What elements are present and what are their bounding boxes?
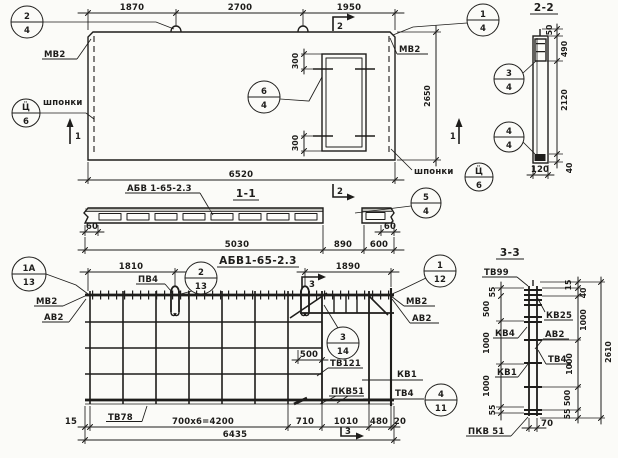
dim-1810: 1810	[119, 262, 143, 272]
slab-section-main-stroke	[239, 214, 261, 221]
section-1-1-dimensions-stroke	[83, 230, 397, 235]
callout-den: 6	[23, 117, 29, 127]
dim-300-bot: 300	[291, 134, 300, 151]
callout-1-12: 1 12	[392, 255, 456, 294]
dim-5030: 5030	[225, 240, 249, 250]
callout-num: 1А	[23, 264, 36, 274]
mesh-view: АБВ1-65-2.3	[12, 255, 457, 444]
section-mark-2-top-stroke	[347, 14, 355, 21]
dim-2120: 2120	[560, 89, 569, 111]
label-mv2-mesh-right-stroke	[391, 296, 404, 306]
callout-1-12-stroke	[392, 278, 426, 294]
section-2-2-body-stroke	[535, 154, 546, 161]
label-mv2-mesh-left: МВ2	[34, 296, 85, 307]
dim-500-left: 500	[482, 300, 491, 317]
callout-den: 4	[506, 83, 512, 93]
dim-4200: 700x6=4200	[172, 417, 234, 427]
dim-1000-a-left: 1000	[482, 332, 491, 354]
callout-num: 3	[506, 69, 512, 79]
label-pv4-stroke	[165, 284, 171, 291]
callout-3-4: 3 4	[494, 61, 536, 94]
section-mark-1-right-stroke	[456, 118, 463, 127]
mesh-bars-stroke	[85, 322, 322, 374]
section-1-1-view: 1-1 5 4	[78, 188, 441, 254]
dim-6435: 6435	[223, 430, 247, 440]
callout-6-4-stroke	[280, 77, 322, 101]
opening-dimensions: 300 300	[291, 49, 322, 156]
section-3-3-view: 3-3 ТВ99 КВ4 КВ1 ПКВ 51 КВ25 АВ	[466, 247, 613, 437]
panel-outline	[88, 32, 395, 160]
label-mv2-right-stroke	[390, 38, 397, 54]
section-mark-2-top: 2	[333, 14, 355, 33]
dim-60-left: 60	[86, 222, 98, 232]
title-text: 3-3	[500, 247, 520, 259]
plan-view: 1870 2700 1950 6520 2650 300 300	[11, 3, 499, 215]
callout-num: 6	[261, 87, 267, 97]
label-shponki-left: шпонки Ц̈ 6	[12, 98, 94, 127]
slab-section-main	[84, 208, 323, 223]
sec33-width-dimension: 70	[522, 418, 553, 432]
callout-den: 6	[476, 181, 482, 191]
label-tv4-sec33-stroke	[538, 350, 546, 364]
dim-1950: 1950	[337, 3, 361, 13]
label-pkv51-sec33: ПКВ 51	[466, 417, 528, 437]
callout-3-14-stroke	[324, 305, 338, 328]
callout-den: 4	[261, 101, 267, 111]
section-mark-1-left: 1	[67, 118, 82, 144]
sec33-left-dimensions-stroke	[495, 288, 524, 413]
dim-55-bot-left: 55	[488, 405, 497, 416]
label-text: ТВ4	[395, 389, 414, 399]
mesh-lifting-loop-left-stroke	[171, 312, 179, 316]
section-mark-2-bottom-stroke	[347, 194, 355, 201]
sec33-right-dimensions-stroke	[540, 282, 605, 418]
dim-1000-b-right: 1000	[565, 353, 574, 375]
callout-1-4-stroke	[393, 23, 467, 35]
mark-text: 3	[309, 280, 315, 290]
section-mark-3-top-stroke	[318, 274, 326, 281]
label-mv2-left-stroke	[77, 39, 91, 59]
blueprint-page: 1870 2700 1950 6520 2650 300 300	[0, 0, 618, 458]
dim-1000-b-left: 1000	[482, 375, 491, 397]
callout-1a-13-stroke	[46, 274, 88, 294]
label-kv25: КВ25	[537, 297, 573, 321]
drawing-canvas: 1870 2700 1950 6520 2650 300 300	[0, 0, 618, 458]
dim-600: 600	[370, 240, 388, 250]
dim-500-right: 500	[563, 389, 572, 406]
callout-den: 13	[23, 278, 35, 288]
plan-bottom-dimension: 6520	[78, 162, 404, 184]
dim-60-right: 60	[384, 222, 396, 232]
mesh-bars-stroke	[334, 295, 357, 313]
label-text: шпонки	[43, 98, 83, 108]
callout-4-4: 4 4	[494, 122, 535, 154]
dim-20: 20	[394, 417, 406, 427]
plan-top-dimensions: 1870 2700 1950	[78, 3, 404, 30]
slab-section-main-stroke	[267, 214, 289, 221]
section-1-1-dimensions-stroke	[85, 225, 394, 236]
callout-1-4: 1 4	[393, 4, 499, 36]
dim-1890: 1890	[336, 262, 360, 272]
mark-text: 2	[337, 22, 343, 32]
callout-3-4-stroke	[523, 61, 536, 73]
callout-den: 13	[195, 282, 207, 292]
label-shponki-left-stroke	[40, 113, 94, 119]
label-shponki-right: шпонки Ц̈ 6	[391, 149, 493, 191]
slab-section-main-stroke	[155, 214, 177, 221]
label-text: шпонки	[414, 167, 454, 177]
label-pv4: ПВ4	[136, 275, 171, 291]
mark-text: 2	[337, 187, 343, 197]
callout-num: 1	[437, 261, 443, 271]
opening-stroke	[326, 58, 362, 147]
section-2-2-title: 2-2	[530, 2, 558, 14]
dim-710: 710	[296, 417, 314, 427]
callout-5-4: 5 4	[355, 188, 441, 218]
title-text: 1-1	[236, 188, 256, 200]
dim-2700: 2700	[228, 3, 252, 13]
dim-1010: 1010	[334, 417, 358, 427]
callout-2-13: 2 13	[177, 262, 217, 295]
label-kv1-sec33-stroke	[518, 364, 528, 377]
section-mark-1-left-stroke	[67, 118, 74, 127]
label-kv4: КВ4	[493, 327, 527, 339]
callout-4-11: 4 11	[425, 384, 457, 416]
label-tv121: ТВ121	[317, 359, 363, 376]
dim-15-right: 15	[564, 280, 573, 291]
label-pkv51-mesh: ПКВ51	[320, 387, 364, 404]
section-mark-3-bottom-stroke	[356, 433, 364, 440]
dim-40: 40	[565, 162, 574, 173]
callout-den: 4	[506, 141, 512, 151]
section-mark-3-bottom: 3	[341, 427, 364, 440]
callout-num: 4	[438, 390, 444, 400]
label-tv99-stroke	[517, 277, 528, 286]
label-kv4-stroke	[518, 327, 527, 338]
section-2-2-body	[533, 29, 548, 163]
label-mv2-left: МВ2	[42, 39, 91, 60]
cage-bars	[524, 280, 542, 416]
callout-den: 12	[434, 275, 446, 285]
mark-text: 1	[75, 132, 81, 142]
callout-2-4-stroke	[43, 22, 174, 29]
sec33-left-dimensions: 55 500 1000 1000 55	[482, 282, 524, 420]
dim-480: 480	[370, 417, 388, 427]
section-3-3-title: 3-3	[496, 247, 524, 259]
slab-section-main-stroke	[183, 214, 205, 221]
callout-num: Ц̈	[475, 165, 483, 177]
callout-num: 1	[480, 10, 486, 20]
callout-num: 2	[198, 268, 204, 278]
mark-text: 1	[450, 132, 456, 142]
callout-den: 4	[480, 24, 486, 34]
section-mark-3-top: 3	[302, 274, 326, 291]
dim-2610-total: 2610	[604, 341, 613, 363]
label-kv1-mesh: КВ1	[362, 370, 423, 380]
callout-den: 4	[24, 26, 30, 36]
dim-70: 70	[541, 419, 553, 429]
title-text: АБВ1-65-2.3	[219, 255, 297, 267]
callout-num: 2	[24, 12, 30, 22]
mark-text: 3	[345, 427, 351, 437]
dim-15: 15	[65, 417, 77, 427]
dim-490: 490	[560, 40, 569, 57]
section-2-2-view: 2-2 3 4 4 4 50	[494, 2, 574, 179]
opening	[313, 54, 375, 151]
slab-section-end-stroke	[366, 213, 385, 220]
dim-500: 500	[300, 350, 318, 360]
callout-6-4: 6 4	[248, 77, 322, 113]
slab-section-main-stroke	[211, 214, 233, 221]
label-mv2-mesh-right: МВ2	[391, 296, 435, 307]
dim-300-top: 300	[291, 52, 300, 69]
section-2-2-dimensions: 50 490 2120 40 120	[527, 24, 574, 179]
dim-120: 120	[531, 165, 549, 175]
callout-den: 11	[435, 404, 447, 414]
sec33-right-dimensions: 15 40 1000 1000 500 55 2610	[540, 277, 613, 424]
dim-55-right: 55	[563, 409, 572, 420]
callout-den: 4	[423, 207, 429, 217]
label-pkv51-sec33-stroke	[511, 417, 528, 436]
slab-section-main-stroke	[99, 214, 121, 221]
label-tv4-mesh: ТВ4	[363, 389, 424, 399]
slab-section-main-stroke	[295, 214, 317, 221]
callout-num: 3	[340, 333, 346, 343]
dim-890: 890	[334, 240, 352, 250]
callout-num: 4	[506, 127, 512, 137]
dim-50: 50	[545, 24, 554, 35]
dim-1870: 1870	[120, 3, 144, 13]
lifting-loop-left	[171, 26, 181, 32]
dim-40-right: 40	[579, 287, 588, 298]
section-1-1-title: 1-1	[233, 188, 259, 200]
callout-1a-13: 1А 13	[12, 257, 88, 294]
dim-1000-a-right: 1000	[579, 309, 588, 331]
mesh-bottom-dimensions: 15 700x6=4200 710 1010 480 20 6435	[65, 404, 406, 444]
section-mark-1-right: 1	[450, 118, 463, 144]
mesh-title: АБВ1-65-2.3	[217, 255, 299, 267]
label-text: КВ1	[397, 370, 417, 380]
dim-2650: 2650	[423, 85, 432, 107]
dim-55-top-left: 55	[488, 287, 497, 298]
title-text: 2-2	[534, 2, 554, 14]
dim-6520: 6520	[229, 170, 253, 180]
label-tv78-stroke	[142, 406, 147, 422]
label-tv99: ТВ99	[482, 268, 528, 286]
section-mark-2-bottom: 2	[333, 184, 355, 201]
section-1-1-dimensions: 60 60 5030 890 600	[78, 222, 404, 254]
mesh-lifting-loop-right	[301, 286, 309, 315]
callout-num: 5	[423, 193, 429, 203]
slab-section-main-stroke	[127, 214, 149, 221]
lifting-loop-right	[298, 26, 308, 32]
callout-num: Ц̈	[22, 101, 30, 113]
callout-den: 14	[337, 347, 349, 357]
label-tv78: ТВ78	[106, 406, 147, 423]
label-kv1-sec33: КВ1	[495, 364, 528, 378]
